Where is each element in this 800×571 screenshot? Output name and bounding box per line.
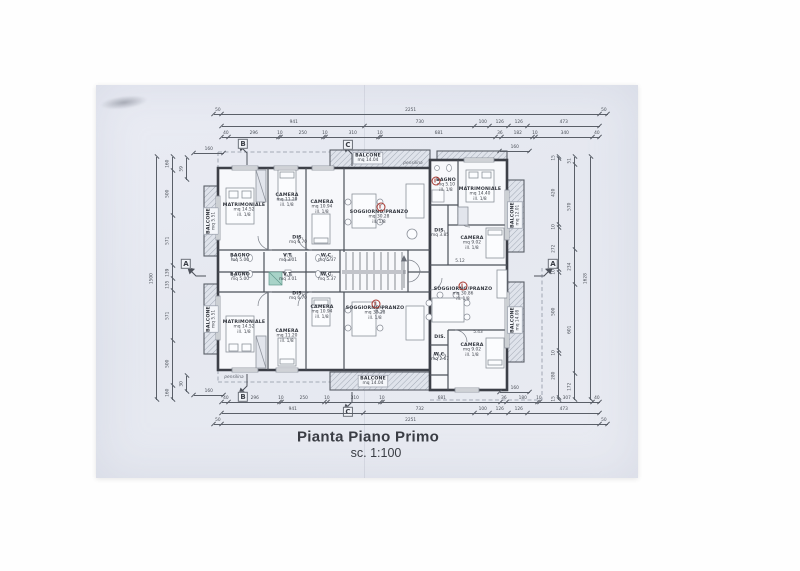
interior-dim: 5.43 <box>473 329 483 334</box>
floor-plan-drawing <box>0 0 800 571</box>
plan-title: Pianta Piano Primo <box>297 429 439 446</box>
section-marker-b-top: B <box>238 139 248 149</box>
section-marker-b-bottom: B <box>238 392 248 402</box>
thermo-marker-icon <box>377 203 386 212</box>
section-marker-a-left: A <box>181 259 191 269</box>
pensilina-label-top: pensilina <box>403 160 422 165</box>
interior-dim: 5.12 <box>455 258 465 263</box>
plan-scale: sc. 1:100 <box>351 446 402 460</box>
pensilina-label-bottom: pensilina <box>224 374 243 379</box>
thermo-marker-icon <box>432 177 441 186</box>
thermo-marker-icon <box>459 282 468 291</box>
section-marker-c-top: C <box>343 140 353 150</box>
thermo-marker-icon <box>372 300 381 309</box>
section-marker-c-bottom: C <box>343 407 353 417</box>
section-marker-a-right: A <box>548 259 558 269</box>
shower-tray <box>269 272 282 285</box>
